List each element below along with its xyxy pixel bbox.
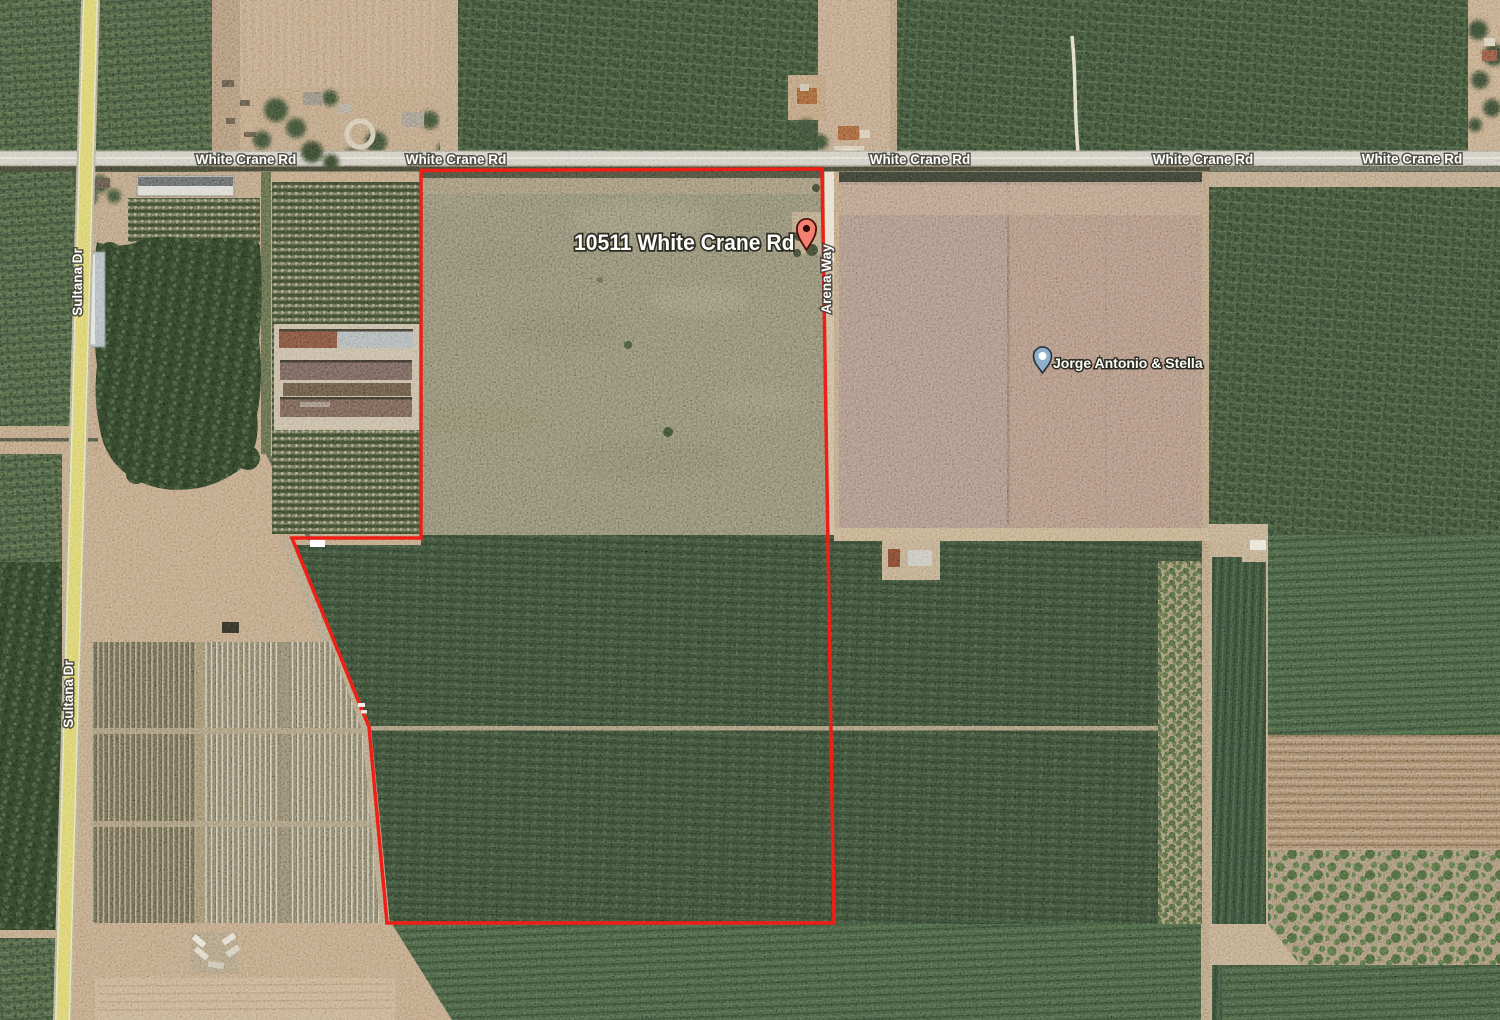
svg-text:White Crane Rd: White Crane Rd xyxy=(870,152,971,167)
svg-text:White Crane Rd: White Crane Rd xyxy=(1362,152,1463,167)
svg-text:White Crane Rd: White Crane Rd xyxy=(196,152,297,167)
svg-text:10511 White Crane Rd: 10511 White Crane Rd xyxy=(574,230,795,256)
svg-text:Sultana Dr: Sultana Dr xyxy=(61,659,76,727)
svg-text:Sultana Dr: Sultana Dr xyxy=(70,247,85,315)
svg-text:White Crane Rd: White Crane Rd xyxy=(406,152,507,167)
svg-text:Arena Way: Arena Way xyxy=(819,244,834,314)
svg-text:White Crane Rd: White Crane Rd xyxy=(1153,152,1254,167)
svg-text:Jorge Antonio & Stella: Jorge Antonio & Stella xyxy=(1053,355,1203,371)
